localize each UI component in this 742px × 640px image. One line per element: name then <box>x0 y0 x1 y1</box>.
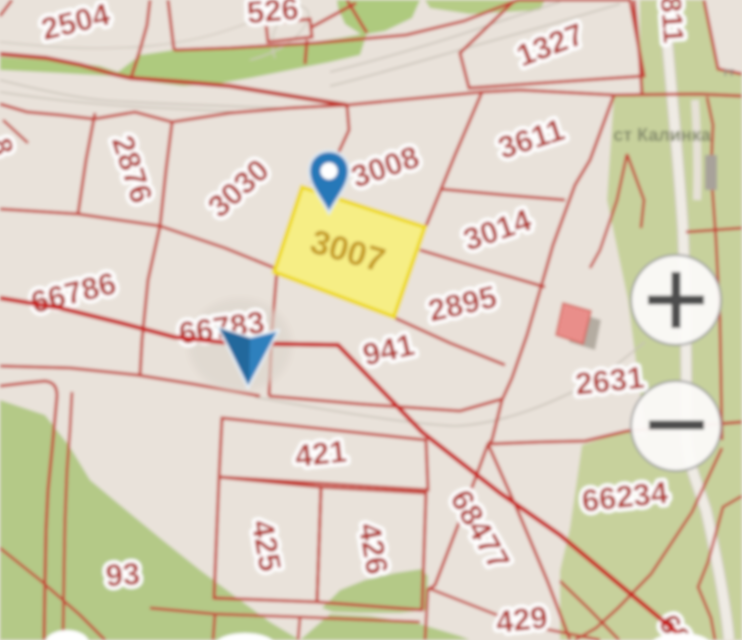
svg-text:93: 93 <box>104 556 141 593</box>
svg-text:ст Калинка: ст Калинка <box>613 125 711 145</box>
svg-text:гт: гт <box>724 65 735 79</box>
svg-text:811: 811 <box>654 0 689 44</box>
svg-text:2631: 2631 <box>574 360 646 402</box>
svg-text:421: 421 <box>293 434 348 474</box>
svg-text:429: 429 <box>494 600 549 640</box>
svg-text:526: 526 <box>246 0 301 30</box>
